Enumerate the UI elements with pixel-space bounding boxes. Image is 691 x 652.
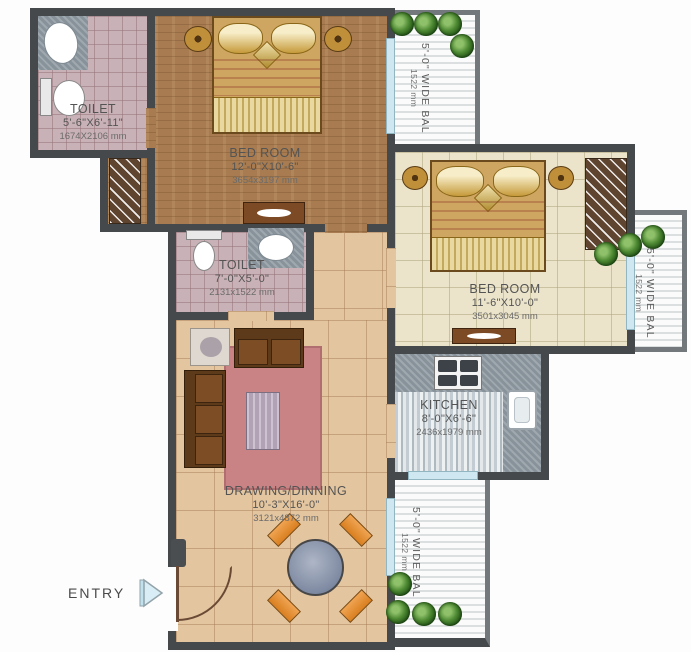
room-dims-mm: 1674X2106 mm bbox=[40, 131, 146, 143]
burner bbox=[438, 360, 457, 372]
plant-icon bbox=[438, 602, 462, 626]
balcony-top-label: 5'-0" WIDE BAL 1522 mm bbox=[409, 32, 431, 144]
room-name: BED ROOM bbox=[430, 282, 580, 297]
entry-arrow-icon bbox=[138, 577, 166, 609]
bedroom-1-window bbox=[386, 38, 395, 134]
wardrobe bbox=[109, 158, 141, 224]
room-dims-ft: 11'-6"X10'-0" bbox=[430, 297, 580, 310]
sofa-cushion bbox=[195, 405, 223, 434]
room-dims-mm: 2436x1979 mm bbox=[393, 427, 505, 439]
balcony-width-label: 5'-0" WIDE BAL bbox=[644, 238, 656, 348]
sofa-cushion bbox=[195, 436, 223, 465]
drawing-dining-label: DRAWING/DINNING 10'-3"X16'-0" 3121x4872 … bbox=[196, 484, 376, 524]
kitchen-label: KITCHEN 8'-0"X6'-6" 2436x1979 mm bbox=[393, 398, 505, 438]
balcony-width-label: 5'-0" WIDE BAL bbox=[419, 32, 431, 144]
side-table bbox=[190, 328, 230, 366]
hallway-floor bbox=[306, 232, 387, 320]
double-bed bbox=[212, 16, 322, 134]
wash-basin-icon bbox=[258, 234, 294, 261]
pillow bbox=[271, 23, 316, 55]
gas-stove-icon bbox=[434, 356, 482, 390]
table-lamp-icon bbox=[402, 166, 428, 190]
table-lamp-icon bbox=[184, 26, 212, 52]
room-name: BED ROOM bbox=[180, 146, 350, 161]
bedroom-1-door-gap bbox=[325, 223, 367, 233]
balcony-right-label: 5'-0" WIDE BAL 1522 mm bbox=[634, 238, 656, 348]
drawing-room-window bbox=[386, 498, 395, 576]
sofa-cushion bbox=[195, 374, 223, 403]
toilet-2-label: TOILET 7'-0"X5'-0" 2131x1522 mm bbox=[182, 258, 302, 298]
room-dims-ft: 12'-0"X10'-6" bbox=[180, 161, 350, 174]
balcony-width-mm: 1522 mm bbox=[409, 32, 419, 144]
bed-foot-runner bbox=[432, 237, 544, 270]
bed-foot-runner bbox=[214, 97, 320, 132]
room-name: DRAWING/DINNING bbox=[196, 484, 376, 499]
room-dims-mm: 2131x1522 mm bbox=[182, 287, 302, 299]
room-dims-mm: 3121x4872 mm bbox=[196, 513, 376, 525]
pillow bbox=[436, 166, 483, 196]
sofa-2-seat bbox=[234, 328, 304, 368]
bedroom-1-label: BED ROOM 12'-0"X10'-6" 3654x3197 mm bbox=[180, 146, 350, 186]
toilet-2-door-gap bbox=[228, 311, 274, 321]
table-lamp-icon bbox=[324, 26, 352, 52]
table-lamp-icon bbox=[548, 166, 574, 190]
kitchen-window bbox=[408, 471, 478, 480]
pillow bbox=[218, 23, 263, 55]
sofa-cushion bbox=[271, 339, 301, 365]
blanket bbox=[432, 201, 544, 236]
toilet-2-wc-tank bbox=[186, 230, 222, 240]
pillow bbox=[493, 166, 540, 196]
sofa-3-seat bbox=[184, 370, 226, 468]
burner bbox=[438, 375, 457, 387]
side-table-lamp bbox=[200, 337, 222, 357]
balcony-width-label: 5'-0" WIDE BAL bbox=[410, 492, 422, 612]
burner bbox=[460, 375, 479, 387]
blanket bbox=[214, 59, 320, 95]
balcony-width-mm: 1522 mm bbox=[400, 492, 410, 612]
room-dims-ft: 10'-3"X16'-0" bbox=[196, 499, 376, 512]
room-name: TOILET bbox=[40, 102, 146, 117]
toilet-1-label: TOILET 5'-6"X6'-11" 1674X2106 mm bbox=[40, 102, 146, 142]
room-dims-ft: 7'-0"X5'-0" bbox=[182, 273, 302, 286]
room-name: TOILET bbox=[182, 258, 302, 273]
plant-icon bbox=[438, 12, 462, 36]
toilet-1-door-gap bbox=[146, 108, 156, 148]
plant-icon bbox=[450, 34, 474, 58]
dresser bbox=[452, 328, 516, 344]
floor-plan: TOILET 5'-6"X6'-11" 1674X2106 mm BED ROO… bbox=[0, 0, 691, 652]
room-name: KITCHEN bbox=[393, 398, 505, 413]
plant-icon bbox=[594, 242, 618, 266]
room-dims-ft: 5'-6"X6'-11" bbox=[40, 117, 146, 130]
entry-wall-stub bbox=[171, 539, 186, 567]
burner bbox=[460, 360, 479, 372]
entry-door-leaf bbox=[176, 566, 179, 622]
kitchen-sink-icon bbox=[507, 390, 537, 430]
balcony-bottom-label: 5'-0" WIDE BAL 1522 mm bbox=[400, 492, 422, 612]
bedroom-2-label: BED ROOM 11'-6"X10'-0" 3501x3045 mm bbox=[430, 282, 580, 322]
double-bed bbox=[430, 160, 546, 272]
dining-table bbox=[287, 539, 344, 596]
entry-label: ENTRY bbox=[68, 585, 125, 601]
sofa-cushion bbox=[238, 339, 268, 365]
room-dims-ft: 8'-0"X6'-6" bbox=[393, 413, 505, 426]
bedroom-2-door-gap bbox=[386, 248, 396, 308]
room-dims-mm: 3654x3197 mm bbox=[180, 175, 350, 187]
room-dims-mm: 3501x3045 mm bbox=[430, 311, 580, 323]
coffee-table bbox=[246, 392, 280, 450]
balcony-width-mm: 1522 mm bbox=[634, 238, 644, 348]
dresser bbox=[243, 202, 305, 224]
